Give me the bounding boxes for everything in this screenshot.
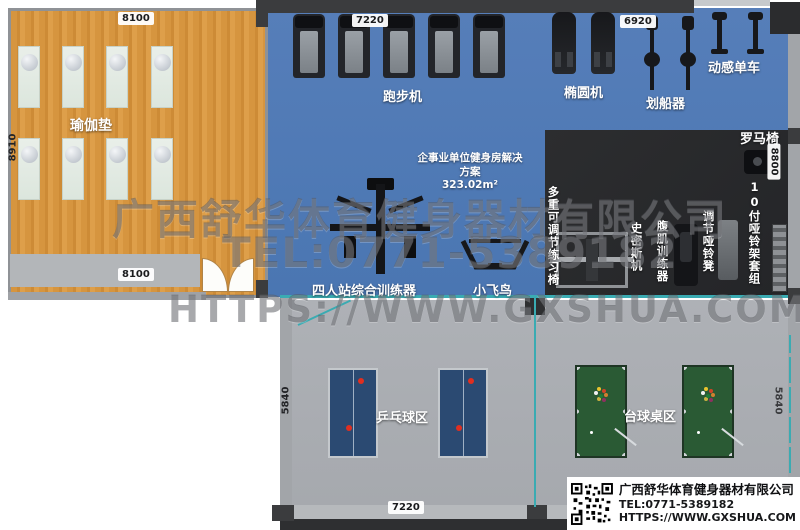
plan-note: 企事业单位健身房解决 方案 323.02m²	[406, 152, 534, 193]
dumbbell-rack-label: 10付哑铃架套组	[748, 180, 760, 296]
dumbbell-rack-icon	[772, 224, 787, 292]
plan-note-area: 323.02m²	[406, 179, 534, 193]
rower-label: 划船器	[646, 93, 685, 112]
spin-bike-icon	[747, 12, 764, 54]
spin-bike-icon	[711, 12, 728, 54]
billiard-area-label: 台球桌区	[624, 406, 676, 425]
multi-station-trainer-label: 四人站综合训练器	[312, 280, 416, 299]
dim-yoga-bottom: 8100	[118, 268, 154, 281]
yoga-blue-column-bottom	[256, 280, 268, 298]
pingpong-table-icon	[438, 368, 488, 458]
treadmill-icon	[473, 14, 505, 78]
company-name: 广西舒华体育健身器材有限公司	[619, 482, 796, 498]
right-wall-column-1	[788, 128, 800, 144]
corner-column-top-right	[770, 2, 800, 34]
dim-rower: 6920	[620, 15, 656, 28]
ab-trainer-icon	[674, 224, 698, 286]
yoga-room-stage	[10, 254, 200, 287]
multi-bench-label: 多重可调节练习椅	[547, 186, 559, 296]
treadmill-icon	[293, 14, 325, 78]
company-tel: TEL:0771-5389182	[619, 498, 796, 512]
pingpong-area-label: 乒乓球区	[376, 407, 428, 426]
billiard-table-icon	[682, 365, 734, 458]
smith-machine-icon	[556, 232, 628, 288]
company-info-text: 广西舒华体育健身器材有限公司 TEL:0771-5389182 HTTPS://…	[619, 482, 796, 525]
dim-cardio-top: 7220	[352, 14, 388, 27]
qr-code	[571, 481, 613, 527]
cable-fly-label: 小飞鸟	[473, 280, 512, 299]
roman-chair-icon	[744, 150, 770, 174]
bottom-mid-column	[527, 505, 547, 519]
glass-partition-vertical	[534, 297, 536, 507]
yoga-mat-icon	[106, 138, 128, 200]
rowing-machine-icon	[679, 16, 697, 90]
elliptical-label: 椭圆机	[564, 82, 603, 101]
yoga-mat-icon	[151, 138, 173, 200]
yoga-mat-icon	[18, 46, 40, 108]
dim-strength-right: 8800	[767, 144, 780, 180]
cable-fly-icon	[460, 236, 530, 276]
dim-yoga-top: 8100	[118, 12, 154, 25]
dim-games-left: 5840	[280, 387, 291, 415]
treadmill-label: 跑步机	[383, 86, 422, 105]
yoga-bottom-wall	[8, 292, 206, 300]
yoga-mat-icon	[62, 46, 84, 108]
top-window	[694, 0, 770, 6]
smith-machine-label: 史密斯机	[630, 222, 642, 284]
elliptical-icon	[552, 12, 576, 74]
yoga-blue-column-top	[256, 13, 268, 27]
dim-games-right: 5840	[772, 387, 783, 415]
company-info-box: 广西舒华体育健身器材有限公司 TEL:0771-5389182 HTTPS://…	[567, 477, 800, 530]
dumbbell-bench-label: 调节哑铃凳	[702, 210, 714, 298]
ab-trainer-label: 腹肌训练器	[656, 220, 668, 295]
gym-floor-plan: 瑜伽垫 跑步机 椭圆机 划船器 动感单车 四人站综合训练器 小飞鸟 罗马椅 多重…	[0, 0, 800, 530]
corner-column-bottom-left	[272, 505, 294, 521]
yoga-mat-icon	[62, 138, 84, 200]
double-door-icon	[202, 258, 254, 292]
dim-yoga-left: 8910	[7, 134, 18, 162]
dim-games-bottom: 7220	[388, 501, 424, 514]
top-wall	[256, 0, 694, 13]
yoga-mat-icon	[18, 138, 40, 200]
pingpong-table-icon	[328, 368, 378, 458]
yoga-mat-icon	[106, 46, 128, 108]
dumbbell-bench-icon	[718, 220, 738, 280]
billiard-table-icon	[575, 365, 627, 458]
multi-station-trainer-icon	[330, 182, 430, 278]
yoga-area-label: 瑜伽垫	[70, 115, 112, 135]
plan-note-line2: 方案	[406, 166, 534, 180]
company-url: HTTPS://WWW.GXSHUA.COM	[619, 511, 796, 525]
plan-note-line1: 企事业单位健身房解决	[406, 152, 534, 166]
spin-bike-label: 动感单车	[708, 57, 760, 76]
yoga-mat-icon	[151, 46, 173, 108]
elliptical-icon	[591, 12, 615, 74]
treadmill-icon	[428, 14, 460, 78]
right-wall-column-2	[788, 288, 800, 304]
